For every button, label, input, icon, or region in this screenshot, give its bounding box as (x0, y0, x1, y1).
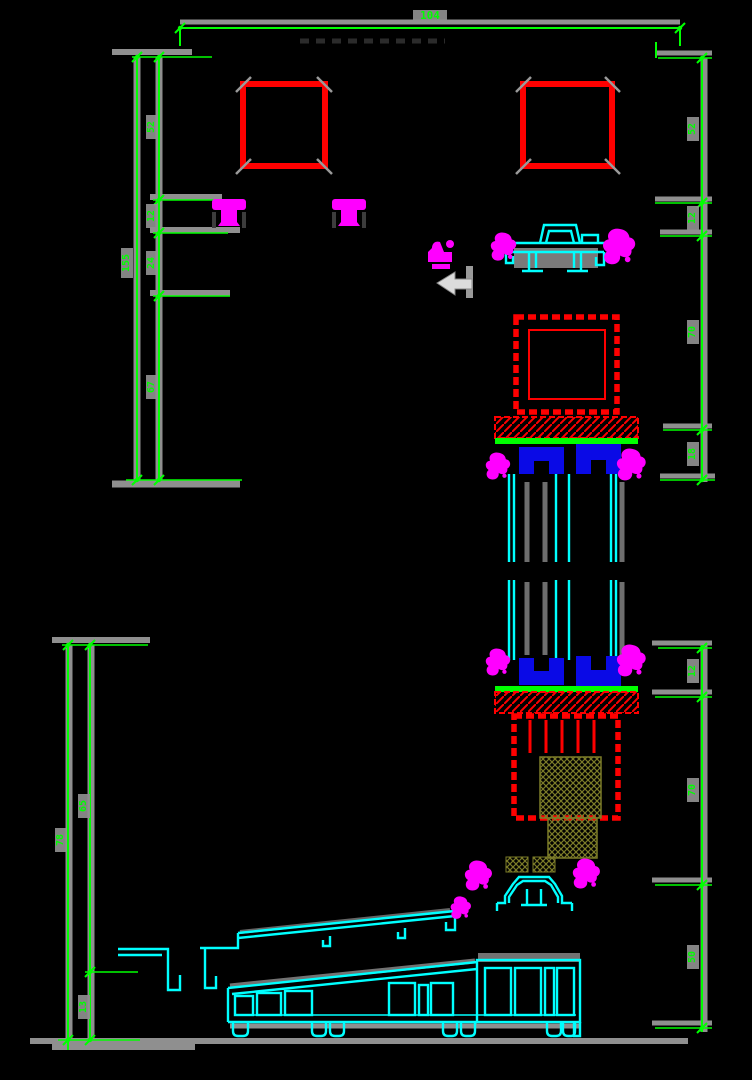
drawing-canvas[interactable] (0, 0, 752, 1080)
anchor-bolt-right[interactable] (332, 199, 366, 228)
transom-clip-left[interactable] (465, 860, 492, 890)
dim-text-ur-seg4: 18 (687, 442, 699, 466)
dim-text-ll-total: 78 (55, 828, 67, 852)
dim-text-ur-seg3: 70 (687, 320, 699, 344)
mullion-profile-top[interactable] (491, 225, 635, 271)
glazing-clip-upper-left[interactable] (486, 452, 510, 479)
dim-text-ul-total: 155 (121, 248, 133, 278)
leader-arrow-icon (437, 266, 473, 298)
steel-tube-section-left[interactable] (236, 77, 332, 174)
embed-anchor[interactable] (428, 240, 454, 269)
transom-clip-right[interactable] (573, 858, 600, 888)
dim-text-lr-seg3: 50 (687, 945, 699, 969)
dim-text-ul-seg4: 67 (146, 375, 158, 399)
dim-text-ul-seg1: 52 (146, 115, 158, 139)
insulation-block[interactable] (514, 716, 618, 858)
dim-text-ul-seg3: 24 (146, 251, 158, 275)
glazing-clip-upper-right[interactable] (617, 449, 646, 481)
dim-text-top-width: 104 (413, 10, 447, 22)
dim-text-ul-seg2: 12 (146, 204, 158, 228)
glazing-clip-lower-left[interactable] (486, 648, 510, 675)
glazing-unit-lower[interactable] (486, 580, 646, 713)
steel-tube-section-right[interactable] (516, 77, 620, 174)
dim-text-lr-seg2: 70 (687, 778, 699, 802)
gasket-upper-right[interactable] (603, 229, 635, 265)
flashing-clip[interactable] (451, 896, 471, 919)
dim-text-ur-seg1: 52 (687, 117, 699, 141)
dim-text-lr-seg1: 12 (687, 659, 699, 683)
transom-profile-bottom[interactable] (465, 857, 600, 911)
cad-viewport[interactable]: 104 52 12 24 67 155 52 12 70 18 65 13 78… (0, 0, 752, 1080)
dim-chain-upper-left[interactable] (126, 52, 242, 485)
glazing-unit-upper[interactable] (486, 317, 646, 562)
gasket-upper-left[interactable] (491, 232, 516, 260)
anchor-bolt-left[interactable] (212, 199, 246, 228)
dim-text-ll-seg1: 65 (78, 794, 90, 818)
dim-text-ur-seg2: 12 (687, 206, 699, 230)
dim-text-ll-seg2: 13 (78, 995, 90, 1019)
